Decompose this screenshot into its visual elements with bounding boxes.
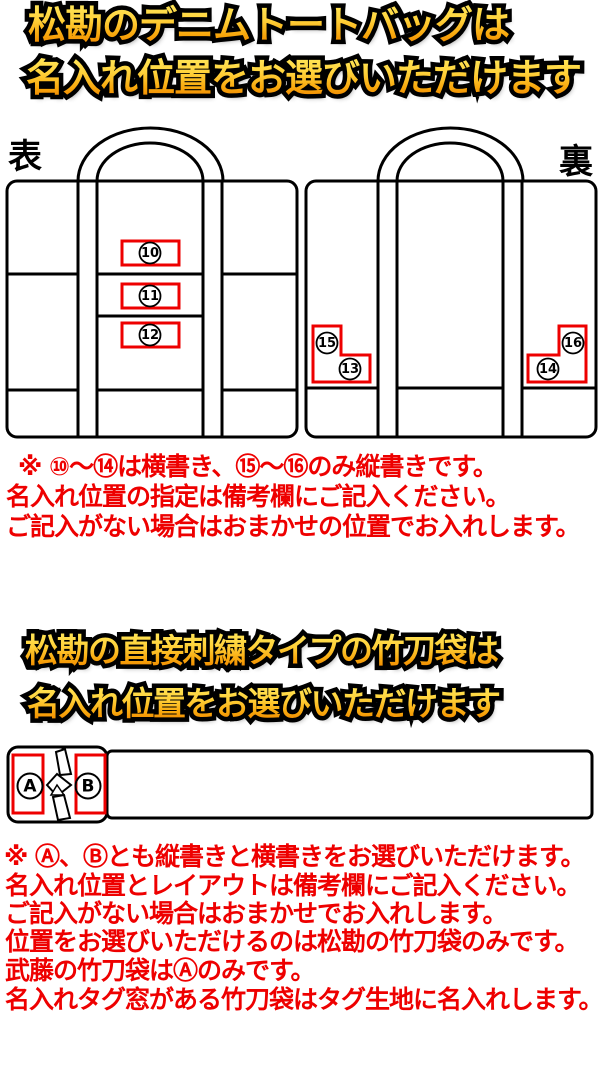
position-number-10: 10	[141, 246, 159, 261]
tote-heading-line1: 松勘のデニムトートバッグは 松勘のデニムトートバッグは	[28, 6, 509, 44]
position-letter-a: A	[23, 777, 37, 797]
shinai-note-line2: 名入れ位置とレイアウトは備考欄にご記入ください。	[5, 872, 581, 900]
tote-note-line1: ※ ⑩〜⑭は横書き、⑮〜⑯のみ縦書きです。	[18, 453, 497, 481]
position-letter-b: B	[82, 777, 95, 797]
shinai-note-line5: 武藤の竹刀袋はⒶのみです。	[5, 957, 315, 985]
position-number-12: 12	[141, 328, 159, 343]
position-number-11: 11	[141, 289, 159, 304]
shinai-heading-line1-text: 松勘の直接刺繍タイプの竹刀袋は	[25, 631, 498, 670]
position-number-14: 14	[539, 362, 557, 377]
tote-note-line3: ご記入がない場合はおまかせの位置でお入れします。	[6, 513, 580, 541]
shinai-heading-line2-text: 名入れ位置をお選びいただけます	[27, 684, 500, 723]
back-strap-left-fill	[379, 183, 396, 435]
front-strap-left-fill	[79, 183, 96, 435]
front-handle-inner-arc	[97, 143, 203, 181]
shinai-heading-line2: 名入れ位置をお選びいただけます 名入れ位置をお選びいただけます	[27, 687, 500, 720]
shinai-note-line3: ご記入がない場合はおまかせでお入れします。	[5, 900, 507, 928]
shinai-bag-diagram: A B	[0, 740, 600, 840]
front-strap-right-fill	[204, 183, 221, 435]
shinai-note-line4: 位置をお選びいただけるのは松勘の竹刀袋のみです。	[5, 928, 579, 956]
back-bag-body	[306, 181, 596, 437]
tote-front-diagram: 10 11 12	[0, 120, 300, 440]
page: 松勘のデニムトートバッグは 松勘のデニムトートバッグは 名入れ位置をお選びいただ…	[0, 0, 600, 1080]
tote-heading-line1-text: 松勘のデニムトートバッグは	[28, 3, 509, 47]
back-strap-right-fill	[504, 183, 521, 435]
shinai-bag-body	[107, 751, 592, 818]
position-number-13: 13	[341, 362, 359, 377]
shinai-heading-line1: 松勘の直接刺繍タイプの竹刀袋は 松勘の直接刺繍タイプの竹刀袋は	[25, 634, 498, 667]
position-number-16: 16	[564, 336, 582, 351]
tote-heading-line2-text: 名入れ位置をお選びいただけます	[26, 56, 581, 100]
position-number-15: 15	[318, 336, 336, 351]
shinai-note-line1: ※ Ⓐ、Ⓑとも縦書きと横書きをお選びいただけます。	[4, 843, 585, 871]
back-handle-inner-arc	[397, 143, 503, 181]
tote-back-diagram: 15 13 16 14	[300, 120, 600, 440]
tote-heading-line2: 名入れ位置をお選びいただけます 名入れ位置をお選びいただけます	[26, 59, 581, 97]
tote-note-line2: 名入れ位置の指定は備考欄にご記入ください。	[6, 483, 510, 511]
shinai-note-line6: 名入れタグ窓がある竹刀袋はタグ生地に名入れします。	[5, 986, 600, 1014]
